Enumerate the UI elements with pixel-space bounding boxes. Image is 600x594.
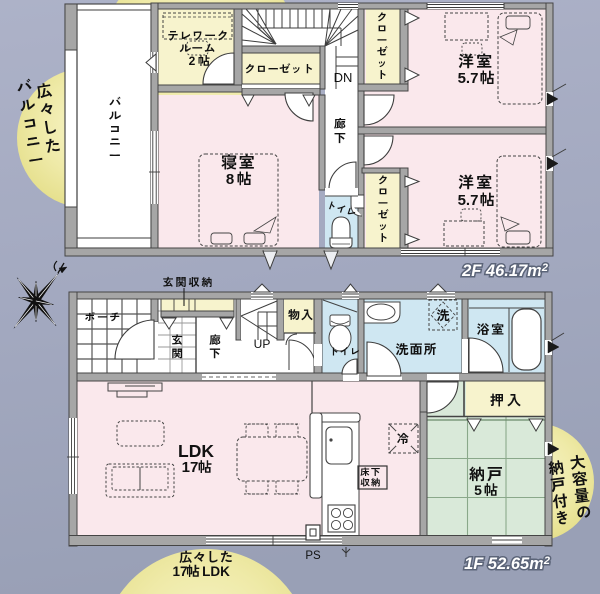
svg-text:ー: ー [97,309,108,325]
svg-text:ロ: ロ [256,61,268,77]
svg-text:ト: ト [329,343,339,358]
svg-text:2F 46.17m2: 2F 46.17m2 [461,257,548,281]
svg-text:帖: 帖 [198,457,212,477]
svg-text:関: 関 [176,274,187,290]
svg-text:玄: 玄 [163,274,174,290]
svg-text:下: 下 [209,346,221,362]
svg-text:DN: DN [334,67,353,86]
svg-text:物: 物 [288,306,300,323]
svg-text:ポ: ポ [85,309,96,325]
svg-text:ト: ト [377,67,388,83]
svg-text:ク: ク [244,61,256,77]
svg-text:2: 2 [189,52,196,69]
svg-text:帖: 帖 [198,52,210,69]
svg-text:ト: ト [378,230,389,246]
svg-text:UP: UP [254,335,271,352]
svg-text:PS: PS [305,547,321,563]
svg-text:ー: ー [267,61,279,77]
svg-text:の: の [575,500,593,524]
svg-text:8: 8 [226,168,234,189]
svg-text:ク: ク [217,27,229,44]
svg-text:関: 関 [171,346,183,362]
svg-text:所: 所 [423,339,436,358]
svg-text:冷: 冷 [397,430,409,447]
svg-text:レ: レ [350,343,360,358]
svg-text:ー: ー [109,145,122,164]
svg-text:テ: テ [167,27,179,44]
svg-text:収: 収 [360,475,370,489]
svg-text:面: 面 [409,339,422,358]
svg-text:収: 収 [189,274,201,290]
svg-text:5.7: 5.7 [458,189,479,210]
svg-text:帖: 帖 [186,560,200,580]
svg-text:5.7: 5.7 [458,67,479,88]
svg-text:押: 押 [490,390,504,410]
svg-text:ゼ: ゼ [279,61,291,77]
svg-text:5: 5 [474,480,482,500]
svg-text:ッ: ッ [291,61,303,77]
svg-text:帖: 帖 [484,480,498,500]
svg-text:入: 入 [301,306,313,323]
svg-text:洗: 洗 [395,339,409,358]
svg-text:17: 17 [182,456,199,477]
svg-text:き: き [553,506,571,530]
svg-text:帖: 帖 [479,189,494,210]
svg-text:17: 17 [172,560,187,580]
svg-text:LDK: LDK [202,560,230,580]
svg-text:イ: イ [340,343,350,358]
svg-text:浴: 浴 [476,319,489,338]
svg-text:室: 室 [491,319,504,338]
svg-text:ト: ト [302,61,314,77]
svg-text:帖: 帖 [236,168,251,189]
svg-text:納: 納 [202,274,213,290]
svg-text:下: 下 [334,130,346,147]
svg-text:入: 入 [507,390,521,410]
svg-text:洗: 洗 [436,305,450,324]
svg-text:チ: チ [109,309,120,325]
svg-text:1F 52.65m2: 1F 52.65m2 [464,550,550,574]
svg-text:納: 納 [371,475,381,489]
svg-text:帖: 帖 [479,67,494,88]
